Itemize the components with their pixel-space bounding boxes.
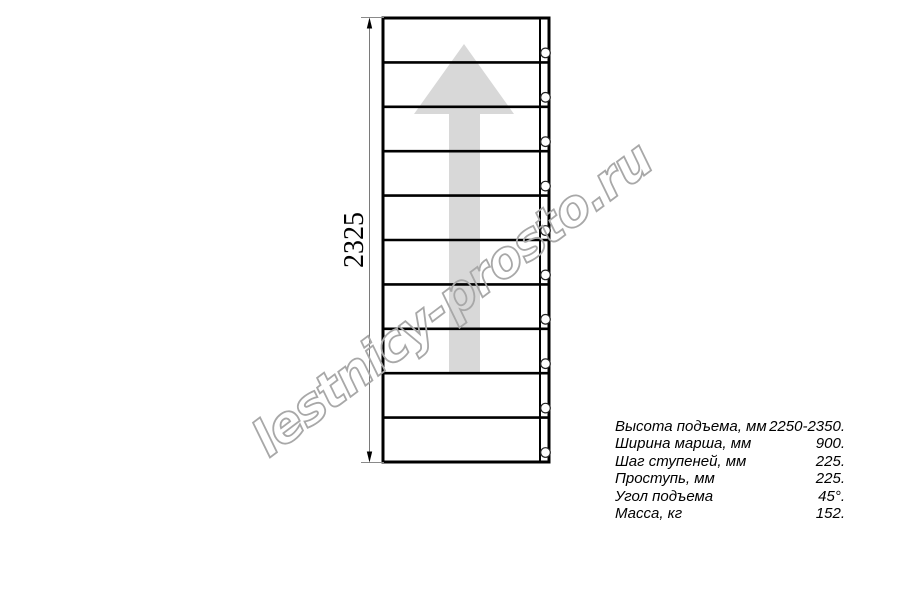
spec-row: Проступь, мм 225. (615, 470, 845, 487)
bolt-circle (541, 137, 551, 147)
bolt-circle (541, 359, 551, 369)
bolt-circle (541, 181, 551, 191)
spec-value: 900. (816, 435, 845, 452)
bolt-circle (541, 315, 551, 325)
spec-value: 45°. (818, 488, 845, 505)
spec-label: Масса, кг (615, 505, 682, 522)
bolt-circle (541, 448, 551, 458)
dimension-arrow-top-icon (367, 18, 372, 29)
spec-label: Высота подъема, мм (615, 418, 767, 435)
page: 2325 lestnicy-prosto.ru Высота подъема, … (0, 0, 900, 600)
spec-row: Шаг ступеней, мм 225. (615, 453, 845, 470)
specs-table: Высота подъема, мм 2250-2350. Ширина мар… (615, 418, 845, 522)
spec-value: 2250-2350. (769, 418, 845, 435)
spec-label: Ширина марша, мм (615, 435, 751, 452)
dimension-label: 2325 (339, 212, 370, 268)
dimension: 2325 (339, 18, 384, 463)
spec-value: 225. (816, 453, 845, 470)
bolt-circle (541, 403, 551, 413)
spec-row: Высота подъема, мм 2250-2350. (615, 418, 845, 435)
bolt-circle (541, 48, 551, 58)
spec-label: Шаг ступеней, мм (615, 453, 746, 470)
spec-value: 225. (816, 470, 845, 487)
spec-row: Масса, кг 152. (615, 505, 845, 522)
spec-label: Проступь, мм (615, 470, 715, 487)
spec-row: Угол подъема 45°. (615, 488, 845, 505)
bolt-circle (541, 93, 551, 103)
dimension-arrow-bottom-icon (367, 452, 372, 463)
spec-label: Угол подъема (615, 488, 713, 505)
bolt-circle (541, 270, 551, 280)
direction-up-arrow-icon (414, 44, 514, 374)
spec-value: 152. (816, 505, 845, 522)
spec-row: Ширина марша, мм 900. (615, 435, 845, 452)
bolt-circle (541, 226, 551, 236)
